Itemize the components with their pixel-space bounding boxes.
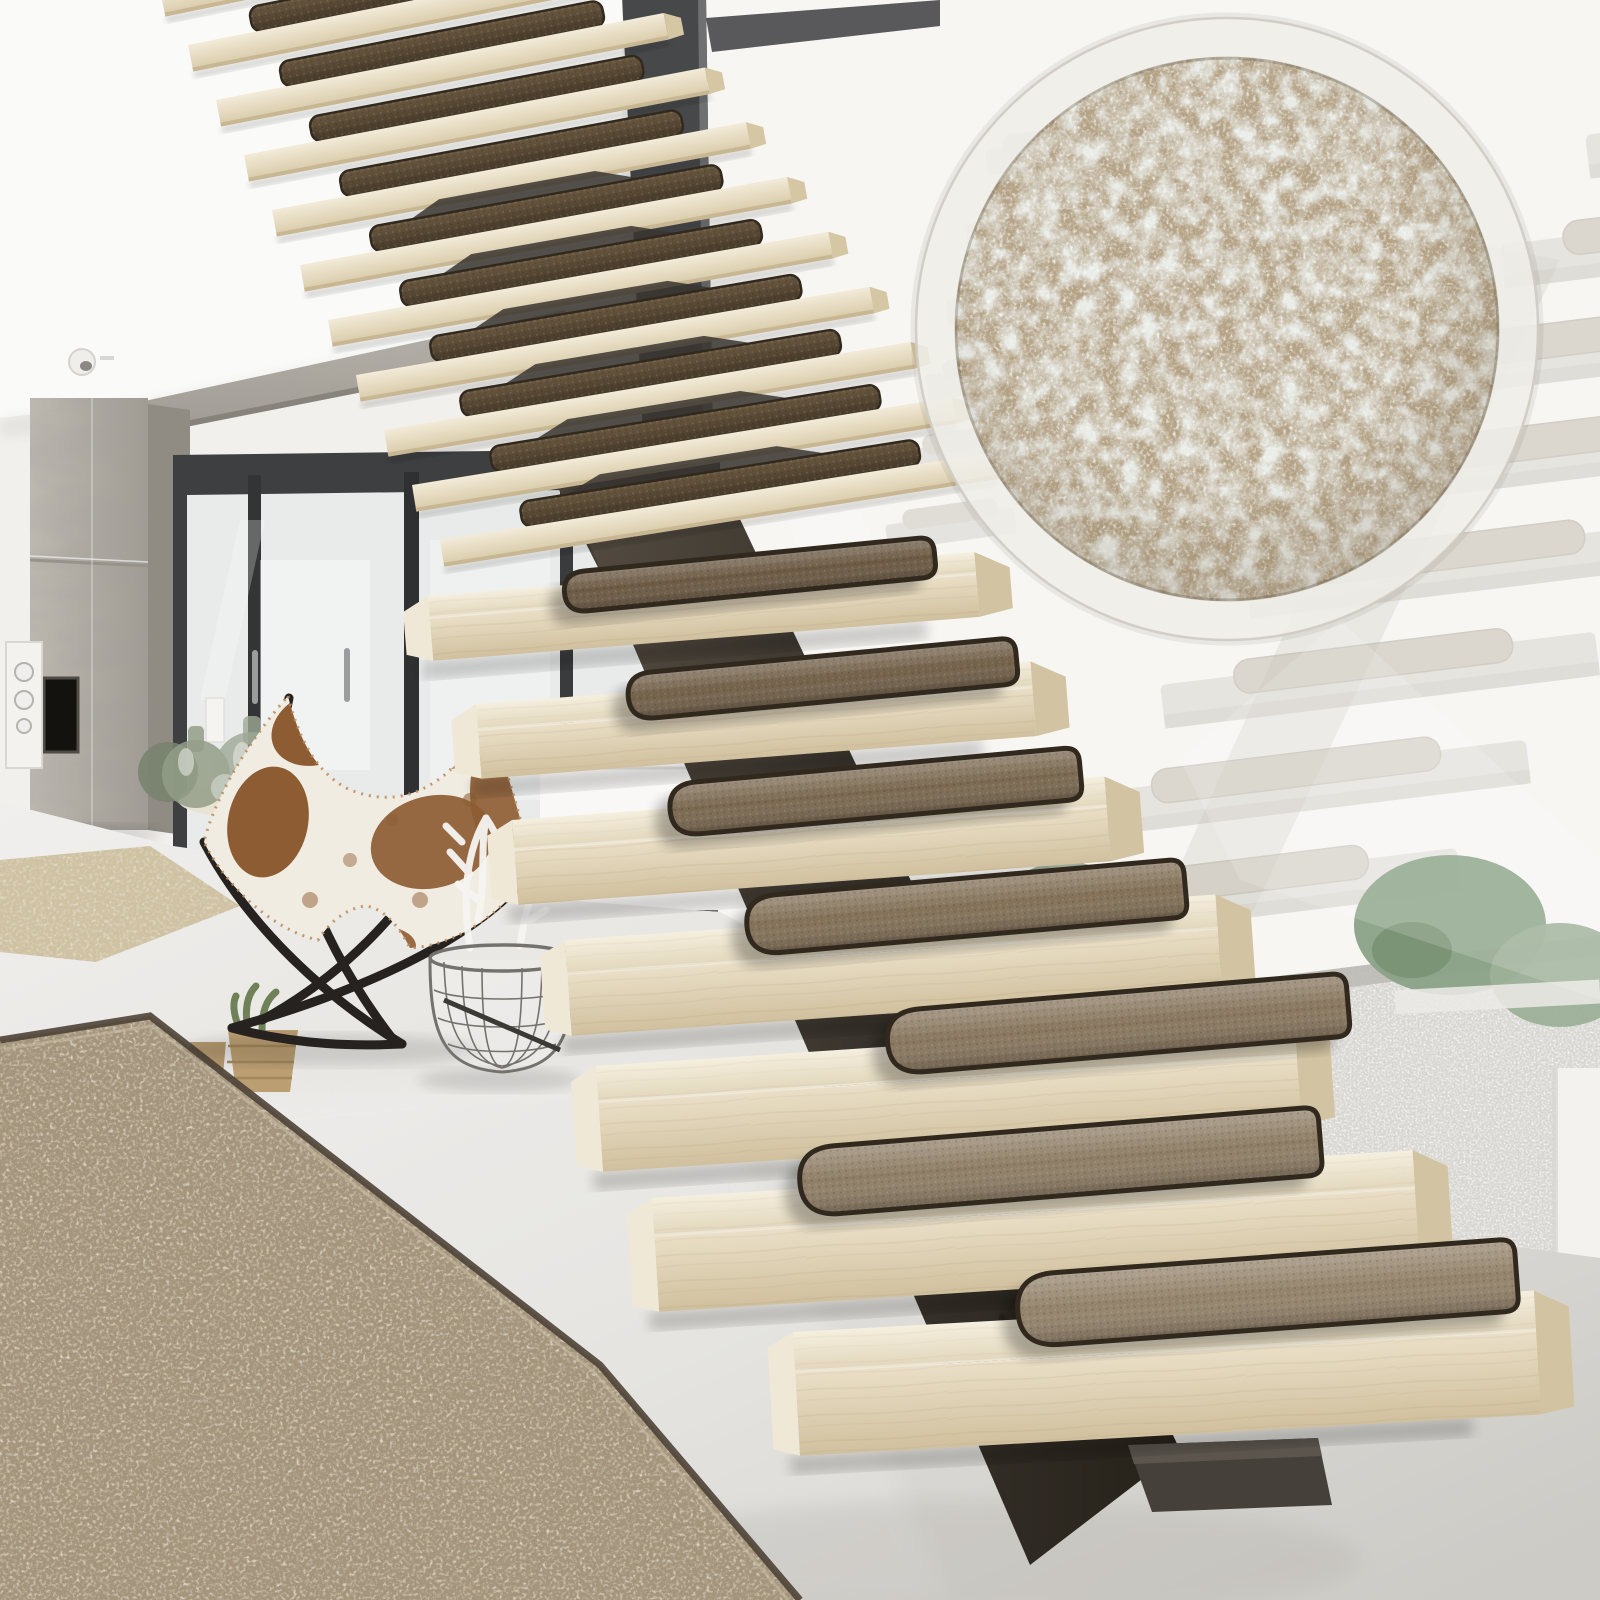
door-handle: [344, 648, 350, 702]
door-handle: [252, 650, 258, 704]
texture-inset: [914, 16, 1540, 642]
product-photo-stair-mats: [0, 0, 1600, 1600]
fireplace-niche: [44, 678, 78, 752]
scene: [0, 0, 1600, 1600]
speaker: [6, 642, 42, 768]
tread-end-face: [1534, 1289, 1575, 1415]
